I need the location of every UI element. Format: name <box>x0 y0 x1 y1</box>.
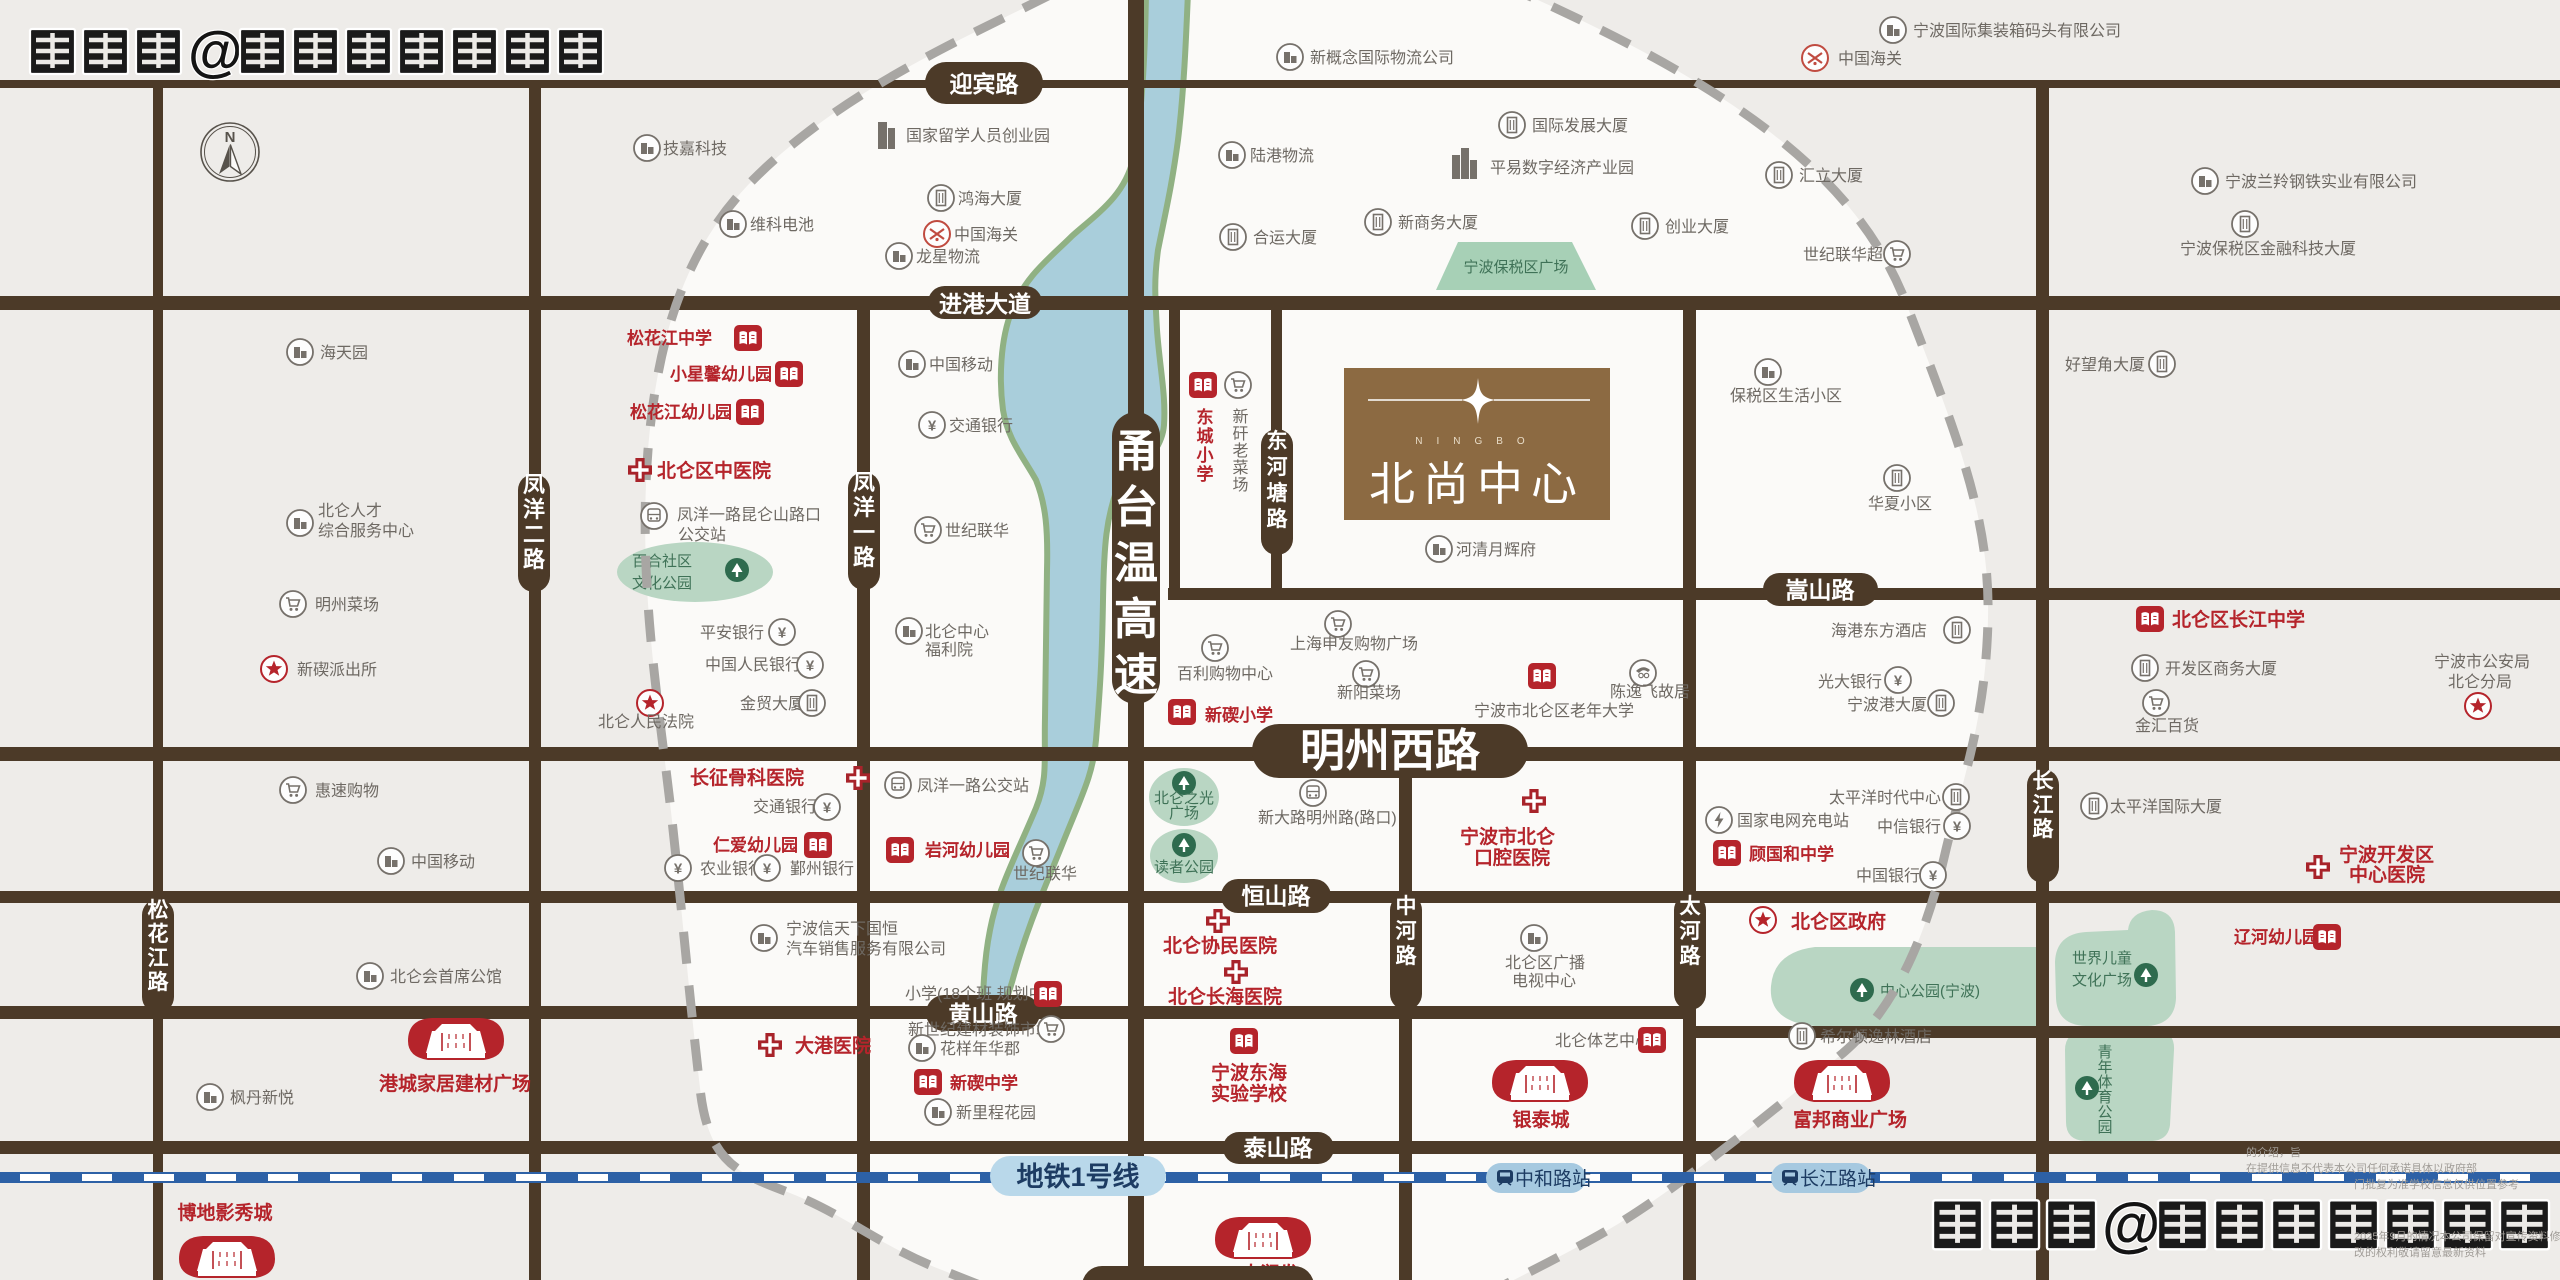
svg-text:中河路: 中河路 <box>1396 895 1418 968</box>
svg-text:小星馨幼儿园: 小星馨幼儿园 <box>670 364 772 384</box>
svg-text:青年体育公园: 青年体育公园 <box>2096 1044 2113 1134</box>
svg-text:上海申友购物广场: 上海申友购物广场 <box>1290 635 1418 653</box>
svg-text:凤洋二路: 凤洋二路 <box>523 472 546 572</box>
svg-text:太平洋时代中心: 太平洋时代中心 <box>1829 789 1941 807</box>
svg-text:文化广场: 文化广场 <box>2072 972 2132 989</box>
svg-text:百合社区: 百合社区 <box>632 553 692 570</box>
svg-text:保税区生活小区: 保税区生活小区 <box>1730 387 1842 405</box>
svg-text:宁波市北仑区老年大学: 宁波市北仑区老年大学 <box>1474 702 1634 720</box>
svg-text:新商务大厦: 新商务大厦 <box>1398 214 1478 232</box>
svg-text:中心医院: 中心医院 <box>2349 863 2425 886</box>
svg-text:仁爱幼儿园: 仁爱幼儿园 <box>713 835 798 855</box>
svg-text:宁波港大厦: 宁波港大厦 <box>1847 696 1927 714</box>
svg-text:恒山路: 恒山路 <box>1242 883 1312 909</box>
svg-text:北仑分局: 北仑分局 <box>2448 673 2512 691</box>
svg-text:中国银行: 中国银行 <box>1856 867 1920 885</box>
svg-text:读者公园: 读者公园 <box>1154 859 1214 876</box>
svg-text:世纪联华: 世纪联华 <box>1013 865 1077 883</box>
svg-text:国家留学人员创业园: 国家留学人员创业园 <box>906 127 1050 145</box>
svg-text:地铁1号线: 地铁1号线 <box>1016 1162 1139 1192</box>
svg-text:海天园: 海天园 <box>320 344 368 362</box>
svg-text:金贸大厦: 金贸大厦 <box>740 695 804 713</box>
svg-text:北仑会首席公馆: 北仑会首席公馆 <box>390 968 502 986</box>
svg-text:博地影秀城: 博地影秀城 <box>177 1201 272 1224</box>
svg-text:顾国和中学: 顾国和中学 <box>1749 844 1834 864</box>
svg-text:公交站: 公交站 <box>678 526 726 544</box>
svg-text:NINGBO: NINGBO <box>1415 436 1538 447</box>
svg-text:中国移动: 中国移动 <box>929 356 993 374</box>
svg-text:平安银行: 平安银行 <box>700 624 764 642</box>
svg-text:综合服务中心: 综合服务中心 <box>318 522 414 540</box>
svg-text:凤洋一路公交站: 凤洋一路公交站 <box>917 777 1029 795</box>
svg-text:陆港物流: 陆港物流 <box>1250 147 1314 165</box>
svg-text:甬台温高速: 甬台温高速 <box>1114 427 1158 700</box>
svg-text:世纪联华: 世纪联华 <box>945 522 1009 540</box>
svg-text:北仑人才: 北仑人才 <box>318 502 382 520</box>
svg-text:中国海关: 中国海关 <box>954 226 1018 244</box>
svg-text:大港医院: 大港医院 <box>795 1034 871 1057</box>
svg-text:中和路站: 中和路站 <box>1515 1168 1591 1190</box>
svg-text:宁波市北仑: 宁波市北仑 <box>1460 825 1556 848</box>
svg-text:门批复为准学校信息仅供位置参考: 门批复为准学校信息仅供位置参考 <box>2354 1177 2519 1191</box>
svg-text:长江路站: 长江路站 <box>1800 1168 1876 1190</box>
svg-text:松花江中学: 松花江中学 <box>627 328 712 348</box>
svg-text:华夏小区: 华夏小区 <box>1868 495 1932 513</box>
svg-text:嵩山路: 嵩山路 <box>1786 577 1856 603</box>
svg-text:维科电池: 维科电池 <box>750 216 814 234</box>
svg-text:松花江幼儿园: 松花江幼儿园 <box>630 402 732 422</box>
svg-text:宁波开发区: 宁波开发区 <box>2339 843 2434 866</box>
svg-text:新碶派出所: 新碶派出所 <box>297 661 377 679</box>
svg-text:口腔医院: 口腔医院 <box>1474 846 1550 869</box>
svg-text:银泰城: 银泰城 <box>1512 1108 1569 1131</box>
svg-text:创业大厦: 创业大厦 <box>1665 218 1729 236</box>
svg-text:国际发展大厦: 国际发展大厦 <box>1532 117 1628 135</box>
svg-text:北仑协民医院: 北仑协民医院 <box>1163 934 1277 957</box>
svg-text:北仑区政府: 北仑区政府 <box>1791 910 1886 933</box>
svg-text:广场: 广场 <box>1169 805 1199 822</box>
svg-text:枫丹新悦: 枫丹新悦 <box>230 1089 294 1107</box>
svg-text:北仑长海医院: 北仑长海医院 <box>1168 985 1282 1008</box>
svg-text:新大路明州路(路口): 新大路明州路(路口) <box>1258 809 1397 827</box>
svg-text:汽车销售服务有限公司: 汽车销售服务有限公司 <box>786 940 946 958</box>
svg-text:北仑体艺中心: 北仑体艺中心 <box>1555 1032 1651 1050</box>
svg-text:明州西路: 明州西路 <box>1300 725 1481 776</box>
svg-text:百利购物中心: 百利购物中心 <box>1177 665 1273 683</box>
svg-text:鄞州银行: 鄞州银行 <box>790 860 854 878</box>
svg-text:平易数字经济产业园: 平易数字经济产业园 <box>1490 159 1634 177</box>
svg-text:东城小学: 东城小学 <box>1194 407 1214 484</box>
svg-text:宁波市公安局: 宁波市公安局 <box>2434 653 2530 671</box>
svg-text:中信银行: 中信银行 <box>1877 818 1941 836</box>
svg-text:新里程花园: 新里程花园 <box>956 1104 1036 1122</box>
svg-text:改的权利敬请留意最新资料: 改的权利敬请留意最新资料 <box>2354 1245 2486 1259</box>
svg-text:河清月辉府: 河清月辉府 <box>1456 541 1536 559</box>
svg-text:交通银行: 交通银行 <box>753 798 817 816</box>
svg-text:新碶中学: 新碶中学 <box>950 1073 1018 1093</box>
svg-text:北仑区广播: 北仑区广播 <box>1505 954 1585 972</box>
svg-text:文化公园: 文化公园 <box>632 575 692 592</box>
svg-text:新世纪建材装饰市场: 新世纪建材装饰市场 <box>908 1021 1052 1039</box>
svg-text:进港大道: 进港大道 <box>939 291 1031 317</box>
svg-text:新阳菜场: 新阳菜场 <box>1337 684 1401 702</box>
svg-text:希尔顿逸林酒店: 希尔顿逸林酒店 <box>1820 1028 1932 1046</box>
svg-text:陈逸飞故居: 陈逸飞故居 <box>1610 683 1690 701</box>
svg-text:2025年9月的情况本公司保留对宣传资料修: 2025年9月的情况本公司保留对宣传资料修 <box>2354 1229 2560 1243</box>
svg-text:凤洋一路: 凤洋一路 <box>853 470 876 570</box>
svg-text:光大银行: 光大银行 <box>1818 673 1882 691</box>
svg-text:北尚中心: 北尚中心 <box>1369 458 1585 510</box>
svg-text:新碶小学: 新碶小学 <box>1205 705 1273 725</box>
svg-text:宁波保税区金融科技大厦: 宁波保税区金融科技大厦 <box>2180 240 2356 258</box>
svg-text:宁波保税区广场: 宁波保税区广场 <box>1463 259 1568 276</box>
svg-text:迎宾路: 迎宾路 <box>950 71 1020 97</box>
svg-text:泰山路: 泰山路 <box>1243 1135 1314 1161</box>
svg-text:宁波东海: 宁波东海 <box>1211 1061 1287 1084</box>
svg-text:北仑人民法院: 北仑人民法院 <box>598 713 694 731</box>
svg-text:北仑区长江中学: 北仑区长江中学 <box>2172 608 2305 631</box>
svg-text:技嘉科技: 技嘉科技 <box>663 140 727 158</box>
svg-text:福利院: 福利院 <box>925 641 973 659</box>
svg-text:新矸老菜场: 新矸老菜场 <box>1230 408 1249 493</box>
svg-text:电视中心: 电视中心 <box>1512 972 1576 990</box>
svg-text:惠速购物: 惠速购物 <box>315 782 379 800</box>
svg-text:太平洋国际大厦: 太平洋国际大厦 <box>2110 798 2222 816</box>
svg-text:国家电网充电站: 国家电网充电站 <box>1737 812 1849 830</box>
svg-text:宁波信天下国恒: 宁波信天下国恒 <box>786 920 898 938</box>
svg-text:小学(18个班 规划中): 小学(18个班 规划中) <box>905 985 1050 1003</box>
svg-text:鸿海大厦: 鸿海大厦 <box>958 190 1022 208</box>
svg-text:明州菜场: 明州菜场 <box>315 596 379 614</box>
svg-text:合运大厦: 合运大厦 <box>1253 229 1317 247</box>
svg-text:在提供信息不代表本公司任何承诺具体以政府部: 在提供信息不代表本公司任何承诺具体以政府部 <box>2246 1161 2477 1175</box>
svg-text:长征骨科医院: 长征骨科医院 <box>690 766 804 789</box>
svg-text:世界儿童: 世界儿童 <box>2072 949 2132 967</box>
svg-text:中国移动: 中国移动 <box>411 853 475 871</box>
svg-text:中国人民银行: 中国人民银行 <box>705 656 801 674</box>
svg-text:宁波国际集装箱码头有限公司: 宁波国际集装箱码头有限公司 <box>1913 22 2121 40</box>
svg-text:中国海关: 中国海关 <box>1838 50 1902 68</box>
svg-text:宁波兰羚钢铁实业有限公司: 宁波兰羚钢铁实业有限公司 <box>2225 173 2417 191</box>
svg-text:的介绍，旨: 的介绍，旨 <box>2246 1145 2301 1159</box>
svg-text:龙星物流: 龙星物流 <box>916 248 980 266</box>
svg-text:开发区商务大厦: 开发区商务大厦 <box>2165 660 2277 678</box>
svg-text:@: @ <box>2102 1191 2161 1258</box>
svg-text:好望角大厦: 好望角大厦 <box>2065 356 2145 374</box>
svg-text:辽河幼儿园: 辽河幼儿园 <box>2234 927 2319 947</box>
svg-text:实验学校: 实验学校 <box>1211 1082 1288 1105</box>
svg-text:凤洋一路昆仑山路口: 凤洋一路昆仑山路口 <box>677 506 821 524</box>
svg-text:@: @ <box>188 19 243 82</box>
svg-text:港城家居建材广场: 港城家居建材广场 <box>379 1072 531 1095</box>
svg-text:花样年华郡: 花样年华郡 <box>940 1040 1020 1058</box>
svg-text:N: N <box>225 129 236 146</box>
svg-text:新概念国际物流公司: 新概念国际物流公司 <box>1310 48 1454 67</box>
svg-text:岩河幼儿园: 岩河幼儿园 <box>924 840 1010 860</box>
svg-text:海港东方酒店: 海港东方酒店 <box>1831 622 1927 640</box>
svg-text:金汇百货: 金汇百货 <box>2135 717 2199 735</box>
svg-text:汇立大厦: 汇立大厦 <box>1799 167 1863 185</box>
svg-text:富邦商业广场: 富邦商业广场 <box>1793 1108 1907 1131</box>
svg-text:北仑区中医院: 北仑区中医院 <box>657 459 771 482</box>
svg-text:北仑中心: 北仑中心 <box>925 623 989 641</box>
svg-text:太河路: 太河路 <box>1680 895 1702 968</box>
svg-text:交通银行: 交通银行 <box>949 417 1013 435</box>
svg-text:长江路: 长江路 <box>2033 770 2055 841</box>
